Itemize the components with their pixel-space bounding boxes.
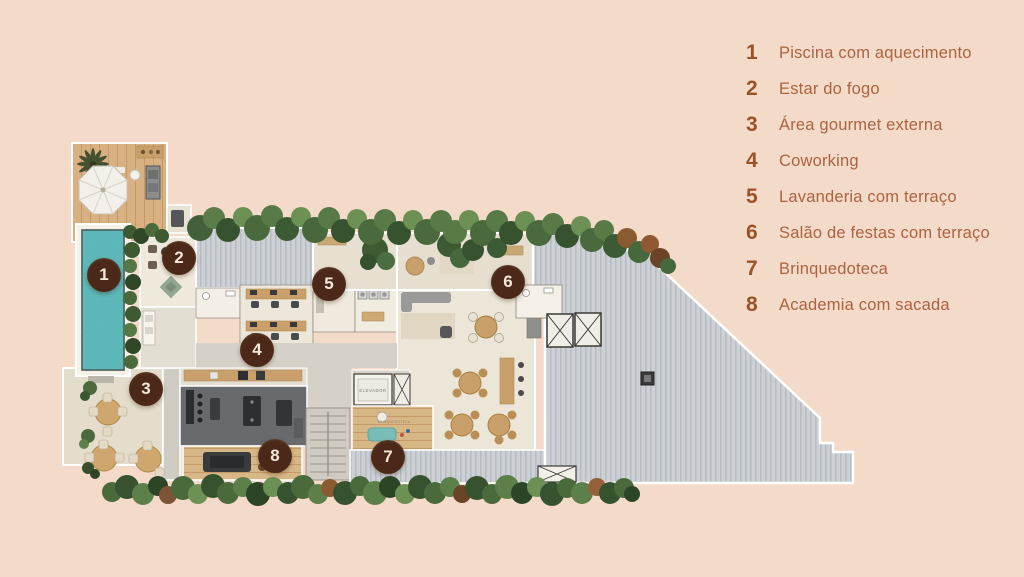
skylight-box: [547, 314, 573, 347]
marker-number: 1: [99, 265, 108, 285]
legend-label: Lavanderia com terraço: [770, 188, 957, 207]
legend-label: Área gourmet externa: [770, 116, 943, 135]
gym-room: [180, 386, 307, 446]
legend-number: 5: [746, 185, 770, 209]
legend-item-pool: 1 Piscina com aquecimento: [746, 42, 990, 64]
legend-label: Academia com sacada: [770, 296, 950, 315]
legend-number: 3: [746, 113, 770, 137]
marker-number: 3: [141, 379, 150, 399]
legend-label: Coworking: [770, 152, 859, 171]
marker-pool: 1: [87, 258, 121, 292]
support-room: [140, 307, 196, 368]
legend-label: Estar do fogo: [770, 80, 880, 99]
skylight-box: [575, 313, 601, 346]
marker-playroom: 7: [371, 440, 405, 474]
marker-coworking: 4: [240, 333, 274, 367]
marker-gym: 8: [258, 439, 292, 473]
umbrella: [79, 166, 127, 214]
legend-item-fire-lounge: 2 Estar do fogo: [746, 78, 990, 100]
hall: [306, 368, 352, 408]
pool: [76, 224, 130, 383]
marker-number: 5: [324, 274, 333, 294]
floor-plan-page: { "page": { "background_color": "#f4dbc9…: [0, 0, 1024, 577]
marker-number: 6: [503, 272, 512, 292]
stairwell: [306, 408, 350, 480]
legend-item-playroom: 7 Brinquedoteca: [746, 258, 990, 280]
legend-number: 8: [746, 293, 770, 317]
elevator-label: ELEVADOR: [359, 388, 386, 393]
laundry-room: [355, 288, 397, 332]
marker-laundry: 5: [312, 267, 346, 301]
marker-number: 8: [270, 446, 279, 466]
legend-item-coworking: 4 Coworking: [746, 150, 990, 172]
legend-number: 1: [746, 41, 770, 65]
side-walkway: [163, 368, 180, 480]
playroom-label: BRINQUEDOTECA: [377, 420, 410, 424]
shaft-box: [394, 374, 410, 405]
legend: 1 Piscina com aquecimento 2 Estar do fog…: [746, 42, 990, 330]
gym-kitchen: [180, 368, 307, 386]
legend-number: 2: [746, 77, 770, 101]
legend-number: 7: [746, 257, 770, 281]
legend-label: Piscina com aquecimento: [770, 44, 972, 63]
elevator-core: ELEVADOR: [352, 370, 410, 410]
wc-room: [196, 288, 240, 318]
legend-label: Salão de festas com terraço: [770, 224, 990, 243]
marker-number: 4: [252, 340, 261, 360]
legend-item-gym: 8 Academia com sacada: [746, 294, 990, 316]
legend-item-party-room: 6 Salão de festas com terraço: [746, 222, 990, 244]
marker-number: 2: [174, 248, 183, 268]
marker-number: 7: [383, 447, 392, 467]
legend-item-laundry: 5 Lavanderia com terraço: [746, 186, 990, 208]
legend-number: 4: [746, 149, 770, 173]
marker-fire-lounge: 2: [162, 241, 196, 275]
legend-item-gourmet: 3 Área gourmet externa: [746, 114, 990, 136]
marker-gourmet: 3: [129, 372, 163, 406]
corridor: [196, 343, 397, 368]
legend-number: 6: [746, 221, 770, 245]
legend-label: Brinquedoteca: [770, 260, 888, 279]
marker-party-room: 6: [491, 265, 525, 299]
